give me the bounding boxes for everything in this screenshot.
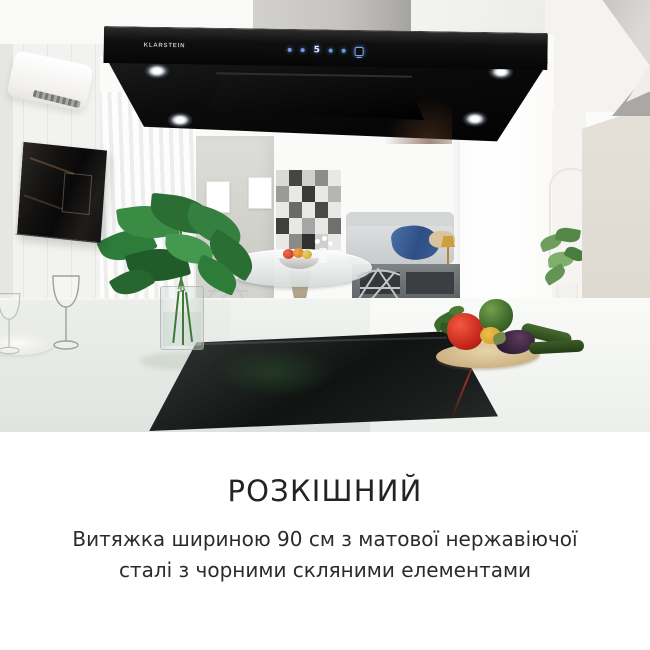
hood-glass-front-panel: KLARSTEIN 5	[103, 26, 548, 70]
light-icon	[355, 46, 364, 55]
product-description: Витяжка шириною 90 см з матової нержавію…	[0, 524, 650, 586]
vase-stem	[182, 290, 184, 345]
hood-light	[167, 112, 193, 128]
white-flower	[315, 239, 320, 244]
timer-dot-icon	[342, 49, 346, 53]
fan-speed-display: 5	[314, 46, 320, 55]
wine-glass	[46, 274, 86, 354]
flower-vase	[319, 248, 327, 263]
brand-logo: KLARSTEIN	[144, 43, 186, 50]
description-line-1: Витяжка шириною 90 см з матової нержавію…	[0, 524, 650, 555]
tv-reflection	[24, 194, 63, 210]
checkered-shelf-unit	[276, 170, 289, 186]
wine-glass	[0, 292, 26, 358]
minus-dot-icon	[301, 48, 305, 52]
tv-reflection-frame	[62, 172, 92, 215]
hood-light	[144, 63, 170, 79]
plus-dot-icon	[329, 49, 333, 53]
description-line-2: сталі з чорними скляними елементами	[0, 555, 650, 586]
hood-light	[462, 111, 488, 127]
caption-block: РОЗКІШНИЙ Витяжка шириною 90 см з матово…	[0, 474, 650, 586]
pear	[302, 250, 312, 259]
product-heading: РОЗКІШНИЙ	[0, 474, 650, 508]
product-photo: KLARSTEIN 5	[0, 0, 650, 432]
white-flower	[328, 241, 333, 246]
product-card: KLARSTEIN 5 РОЗКІШНИЙ Витяжка шириною 90…	[0, 0, 650, 650]
wall-tv	[15, 142, 107, 244]
glass-vase	[160, 286, 204, 350]
hood-touch-controls: 5	[288, 44, 364, 57]
tv-stand-shelf	[406, 272, 454, 294]
white-flower	[322, 236, 327, 241]
wall-frame	[248, 177, 272, 209]
power-dot-icon	[288, 48, 292, 52]
